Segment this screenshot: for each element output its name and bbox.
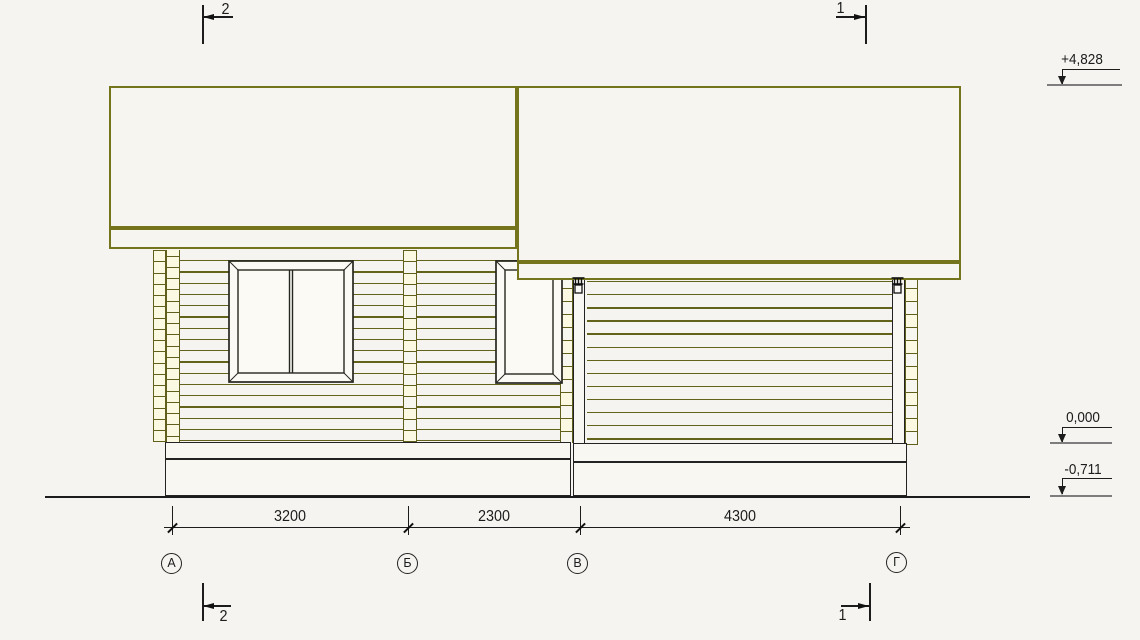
section-number: 1 xyxy=(836,0,844,18)
log-end-cell xyxy=(905,353,918,367)
section-number: 2 xyxy=(219,608,227,626)
porch-log-line xyxy=(587,320,892,321)
log-end-cell xyxy=(560,392,573,406)
facade-elevation-drawing: +4,828 0,000 -0,711 3200 2300 4300 А Б В xyxy=(0,0,1140,640)
wall-log-line xyxy=(180,395,560,396)
log-end-column xyxy=(905,262,918,445)
section-cut-line xyxy=(865,5,867,44)
elevation-value: -0,711 xyxy=(1059,461,1108,478)
main-foundation xyxy=(165,459,571,496)
screw-jack-icon xyxy=(571,276,586,299)
section-arrow-icon xyxy=(854,14,865,20)
log-end-cell xyxy=(905,340,918,354)
dimension-value: 3200 xyxy=(254,508,326,526)
axis-bubble-v: В xyxy=(567,553,588,574)
dimension-line xyxy=(164,527,910,528)
log-end-cell xyxy=(905,327,918,341)
section-cut-line xyxy=(202,5,204,44)
log-end-cell xyxy=(905,288,918,302)
log-end-cell xyxy=(905,366,918,380)
porch-log-line xyxy=(587,412,892,413)
log-end-column xyxy=(403,250,417,442)
section-arrow-icon xyxy=(203,603,214,609)
porch-roof-slab xyxy=(517,86,961,262)
section-arrow-icon xyxy=(858,603,869,609)
extension-line-b xyxy=(408,506,409,535)
extension-line-v xyxy=(580,506,581,535)
elevation-level-line xyxy=(1050,442,1112,444)
log-end-cell xyxy=(905,301,918,315)
log-end-cell xyxy=(153,430,166,442)
porch-log-line xyxy=(587,333,892,334)
section-number: 1 xyxy=(838,607,846,625)
section-number: 2 xyxy=(221,1,229,19)
porch-log-line xyxy=(587,425,892,426)
elevation-shelf-line xyxy=(1062,69,1120,70)
dimension-value: 2300 xyxy=(458,508,530,526)
main-sill-band xyxy=(165,442,571,459)
elevation-level-line xyxy=(1050,495,1112,497)
log-end-column xyxy=(153,250,166,442)
extension-line-a xyxy=(172,506,173,535)
porch-log-line xyxy=(587,294,892,295)
porch-post-right xyxy=(892,279,905,445)
log-end-cell xyxy=(905,314,918,328)
log-end-cell xyxy=(560,405,573,419)
log-end-cell xyxy=(905,405,918,419)
elevation-value: 0,000 xyxy=(1059,409,1108,426)
extension-line-g xyxy=(900,506,901,535)
log-end-cell xyxy=(905,418,918,432)
dimension-value: 4300 xyxy=(704,508,776,526)
wall-log-line xyxy=(180,418,560,419)
elevation-shelf-line xyxy=(1062,427,1112,428)
window-large-frame xyxy=(228,260,354,383)
wall-log-line xyxy=(180,429,560,430)
log-end-cell xyxy=(560,418,573,432)
porch-post-left xyxy=(573,279,585,445)
porch-foundation xyxy=(573,462,907,496)
axis-bubble-b: Б xyxy=(397,553,418,574)
main-roof-fascia xyxy=(109,228,517,249)
window-large xyxy=(228,260,354,383)
elevation-value: +4,828 xyxy=(1056,51,1108,68)
log-end-column xyxy=(166,250,180,442)
porch-log-line xyxy=(587,347,892,348)
porch-log-line xyxy=(587,399,892,400)
screw-jack-icon xyxy=(890,276,905,299)
axis-bubble-a: А xyxy=(161,553,182,574)
section-arrow-icon xyxy=(203,14,214,20)
porch-log-line xyxy=(587,281,892,282)
elevation-level-line xyxy=(1047,84,1122,86)
main-roof-slab xyxy=(109,86,517,228)
porch-log-line xyxy=(587,307,892,308)
section-cut-line xyxy=(869,583,871,621)
porch-log-line xyxy=(587,386,892,387)
porch-log-line xyxy=(587,438,892,439)
log-end-cell xyxy=(905,379,918,393)
log-end-cell xyxy=(905,392,918,406)
axis-bubble-g: Г xyxy=(886,552,907,573)
porch-deck-band xyxy=(573,443,907,462)
porch-log-line xyxy=(587,373,892,374)
wall-log-line xyxy=(180,406,560,407)
porch-log-line xyxy=(587,360,892,361)
elevation-shelf-line xyxy=(1062,478,1112,479)
log-end-cell xyxy=(403,430,417,442)
